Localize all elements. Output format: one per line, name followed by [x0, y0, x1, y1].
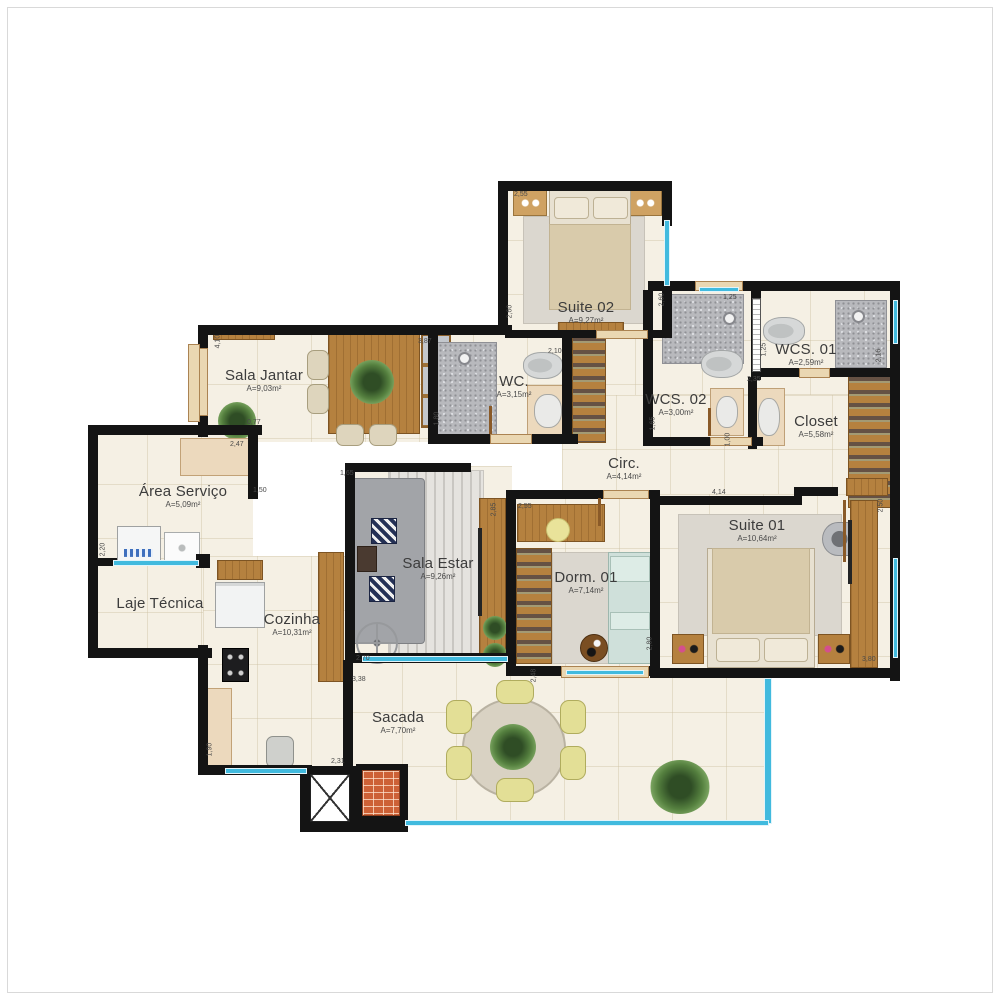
room-name: Closet [701, 414, 931, 430]
room-name: Suite 01 [642, 518, 872, 534]
room-area: A=10,31m² [177, 629, 407, 637]
shower-head [723, 312, 736, 325]
door-threshold [603, 490, 649, 499]
kitchen-shelf [217, 560, 263, 580]
patio-chair [560, 700, 586, 734]
room-area: A=4,14m² [509, 473, 739, 481]
dimension-label: 2,70 [356, 655, 370, 662]
window-glass [893, 558, 898, 658]
patio-chair [496, 778, 534, 802]
pillow [716, 638, 760, 662]
door-leaf [598, 498, 601, 526]
washing-machine [117, 526, 161, 564]
dimension-label: 4,14 [712, 489, 726, 496]
dimension-label: 2,48 [530, 669, 537, 683]
desk-lamp [546, 518, 570, 542]
dimension-label: 1,80 [433, 412, 440, 426]
shaft-x [310, 774, 350, 822]
floor-plan: Suite 02A=9,27m²Sala JantarA=9,03m²WC.A=… [0, 0, 1000, 1000]
wall [88, 425, 262, 435]
room-name: WC. [399, 374, 629, 390]
room-name: Laje Técnica [45, 596, 275, 612]
room-label-wcs01: WCS. 01A=2,59m² [691, 342, 921, 367]
room-area: A=5,09m² [68, 501, 298, 509]
side-table [580, 634, 608, 662]
window-glass [699, 287, 739, 292]
nightstand-suite02-right [628, 190, 662, 216]
dimension-label: 1,00 [724, 433, 731, 447]
dimension-label: 2,16 [875, 349, 882, 363]
patio-chair [446, 746, 472, 780]
dimension-label: 1,25 [760, 343, 767, 357]
window-glass [113, 560, 199, 566]
pillow [764, 638, 808, 662]
dimension-label: 2,55 [514, 191, 528, 198]
stove [222, 648, 249, 682]
wall [794, 487, 838, 496]
wall [300, 822, 408, 832]
door-threshold [799, 368, 830, 378]
wardrobe-top [846, 478, 888, 496]
window-glass [664, 220, 670, 286]
nightstand-suite01-left [672, 634, 704, 664]
room-label-closet: ClosetA=5,58m² [701, 414, 931, 439]
plant-large [650, 760, 710, 814]
bed-fold [610, 612, 650, 630]
wall [88, 425, 98, 658]
room-name: WCS. 02 [561, 392, 791, 408]
pillow [554, 197, 589, 219]
shower-head [458, 352, 471, 365]
dimension-label: 2,20 [99, 543, 106, 557]
grill-brick [362, 770, 400, 816]
dimension-label: 2,80 [646, 637, 653, 651]
dimension-label: 2,50 [877, 499, 884, 513]
dimension-label: 1,25 [723, 294, 737, 301]
room-area: A=2,59m² [691, 359, 921, 367]
wall [828, 368, 894, 377]
wall [653, 668, 900, 678]
patio-chair [496, 680, 534, 704]
room-area: A=7,14m² [471, 587, 701, 595]
dimension-label: 2,55 [518, 503, 532, 510]
room-area: A=5,58m² [701, 431, 931, 439]
room-name: Sala Jantar [149, 368, 379, 384]
room-name: Dorm. 01 [471, 570, 701, 586]
dimension-label: 2,85 [490, 503, 497, 517]
dimension-label: 1,65 [340, 470, 354, 477]
dimension-label: 4,10 [214, 335, 221, 349]
room-name: Sacada [283, 710, 513, 726]
patio-chair [560, 746, 586, 780]
room-label-dorm01: Dorm. 01A=7,14m² [471, 570, 701, 595]
room-name: WCS. 01 [691, 342, 921, 358]
plant [483, 616, 507, 640]
dimension-label: 2,47 [230, 441, 244, 448]
room-area: A=9,03m² [149, 385, 379, 393]
wall [198, 325, 512, 335]
room-label-cozinha: CozinhaA=10,31m² [177, 612, 407, 637]
room-label-circ: Circ.A=4,14m² [509, 456, 739, 481]
window-glass [893, 300, 898, 344]
pillow [593, 197, 628, 219]
door-threshold [596, 330, 648, 339]
dimension-label: 1,65 [649, 417, 656, 431]
room-name: Circ. [509, 456, 739, 472]
dining-chair [369, 424, 397, 446]
dimension-label: 3,38 [352, 676, 366, 683]
dimension-label: 2,60 [506, 305, 513, 319]
dimension-label: 2,31 [331, 758, 345, 765]
door-threshold [490, 434, 532, 444]
wall [658, 496, 802, 505]
dimension-label: 2,35 [747, 376, 761, 383]
dimension-label: 2,60 [658, 293, 665, 307]
dimension-label: 3,87 [418, 338, 432, 345]
window-glass [362, 656, 508, 662]
dimension-label: 3,80 [862, 656, 876, 663]
window-glass [225, 768, 307, 774]
window-glass [764, 678, 772, 824]
dimension-label: 2,10 [548, 348, 562, 355]
dimension-label: 1,90 [206, 743, 213, 757]
window-glass [405, 820, 769, 826]
wall [88, 648, 212, 658]
nightstand-suite01-right [818, 634, 850, 664]
dining-chair [336, 424, 364, 446]
wall [648, 281, 900, 291]
door-leaf [489, 406, 492, 434]
room-label-sala_jantar: Sala JantarA=9,03m² [149, 368, 379, 393]
kitchen-sink-stool [266, 736, 294, 768]
window-glass [566, 670, 644, 675]
shower-head [852, 310, 865, 323]
floor-plan-canvas: Suite 02A=9,27m²Sala JantarA=9,03m²WC.A=… [0, 0, 1000, 1000]
wall [755, 368, 801, 377]
dimension-label: 0,77 [247, 419, 261, 426]
room-area: A=7,70m² [283, 727, 513, 735]
blanket [712, 548, 810, 634]
room-name: Cozinha [177, 612, 407, 628]
wall [498, 181, 672, 191]
wall [345, 463, 471, 472]
room-label-laje_tecnica: Laje Técnica [45, 596, 275, 612]
room-area: A=10,64m² [642, 535, 872, 543]
blanket [549, 224, 631, 310]
room-label-suite01: Suite 01A=10,64m² [642, 518, 872, 543]
pillow-zigzag [371, 518, 397, 544]
room-label-sacada: SacadaA=7,70m² [283, 710, 513, 735]
dimension-label: 1,50 [253, 487, 267, 494]
